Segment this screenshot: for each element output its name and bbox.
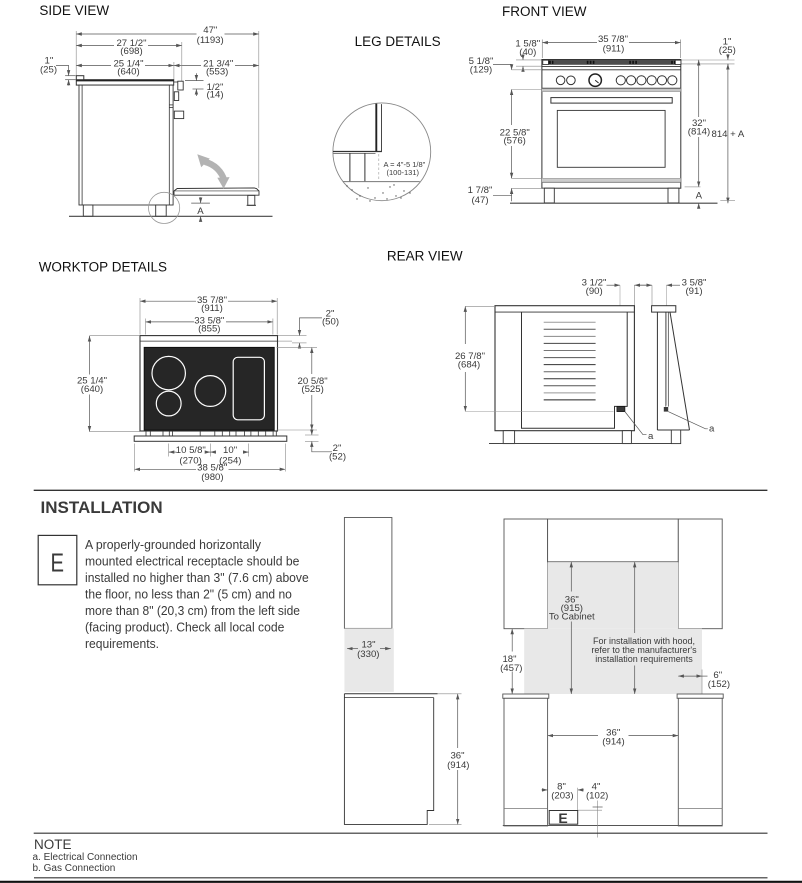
svg-text:E: E <box>51 548 65 578</box>
svg-text:10 5/8": 10 5/8" <box>176 445 206 456</box>
svg-text:(814): (814) <box>688 126 710 137</box>
svg-text:(576): (576) <box>503 135 525 146</box>
svg-text:(100-131): (100-131) <box>387 168 420 177</box>
svg-text:FRONT VIEW: FRONT VIEW <box>502 4 587 19</box>
svg-text:a. Electrical Connection: a. Electrical Connection <box>33 852 138 863</box>
svg-text:SIDE VIEW: SIDE VIEW <box>39 3 109 18</box>
svg-text:(14): (14) <box>206 90 223 101</box>
svg-text:10": 10" <box>223 445 237 456</box>
svg-text:(457): (457) <box>500 663 522 674</box>
svg-text:A properly-grounded horizontal: A properly-grounded horizontally <box>85 537 261 552</box>
svg-text:To Cabinet: To Cabinet <box>549 611 595 622</box>
svg-text:(684): (684) <box>458 359 480 370</box>
svg-text:(50): (50) <box>322 317 339 328</box>
svg-text:(525): (525) <box>301 384 323 395</box>
svg-text:INSTALLATION: INSTALLATION <box>41 498 163 517</box>
svg-text:NOTE: NOTE <box>34 837 72 852</box>
svg-text:more than 8" (20,3 cm) from th: more than 8" (20,3 cm) from the left sid… <box>85 603 300 618</box>
svg-text:installed no higher than 3" (7: installed no higher than 3" (7.6 cm) abo… <box>85 570 309 585</box>
svg-text:(152): (152) <box>708 679 730 690</box>
svg-text:A: A <box>696 190 703 201</box>
svg-text:(203): (203) <box>551 791 573 802</box>
svg-text:(25): (25) <box>40 65 57 76</box>
svg-text:(640): (640) <box>81 384 103 395</box>
svg-text:LEG DETAILS: LEG DETAILS <box>355 34 441 49</box>
svg-text:REAR VIEW: REAR VIEW <box>387 249 463 264</box>
svg-text:(25): (25) <box>719 45 736 56</box>
svg-text:A: A <box>197 206 204 217</box>
svg-text:a: a <box>709 424 715 435</box>
svg-text:(640): (640) <box>117 66 139 77</box>
svg-text:(914): (914) <box>602 737 624 748</box>
svg-text:requirements.: requirements. <box>85 636 159 651</box>
svg-text:(911): (911) <box>603 43 625 54</box>
svg-text:WORKTOP DETAILS: WORKTOP DETAILS <box>39 260 167 275</box>
svg-text:(911): (911) <box>201 303 223 314</box>
svg-text:(855): (855) <box>198 323 220 334</box>
svg-text:(91): (91) <box>685 286 702 297</box>
svg-text:(52): (52) <box>329 452 346 463</box>
svg-text:(914): (914) <box>447 760 469 771</box>
svg-text:E: E <box>558 810 567 826</box>
svg-text:(330): (330) <box>357 649 379 660</box>
svg-text:(1193): (1193) <box>197 35 224 46</box>
svg-text:(102): (102) <box>586 791 608 802</box>
svg-text:(553): (553) <box>206 66 228 77</box>
svg-text:(980): (980) <box>201 472 223 483</box>
svg-text:(90): (90) <box>586 286 603 297</box>
svg-text:(40): (40) <box>519 47 536 58</box>
svg-text:(129): (129) <box>470 64 492 75</box>
svg-text:b. Gas Connection: b. Gas Connection <box>33 863 116 874</box>
svg-text:a: a <box>648 431 654 442</box>
svg-text:installation requirements: installation requirements <box>595 654 693 664</box>
svg-text:the floor, no less than 2" (5: the floor, no less than 2" (5 cm) and no <box>85 587 292 602</box>
svg-text:(47): (47) <box>471 195 488 206</box>
svg-text:(facing product). Check all lo: (facing product). Check all local code <box>85 620 284 635</box>
svg-text:mounted electrical receptacle: mounted electrical receptacle should be <box>85 554 299 569</box>
svg-text:(698): (698) <box>120 46 142 57</box>
